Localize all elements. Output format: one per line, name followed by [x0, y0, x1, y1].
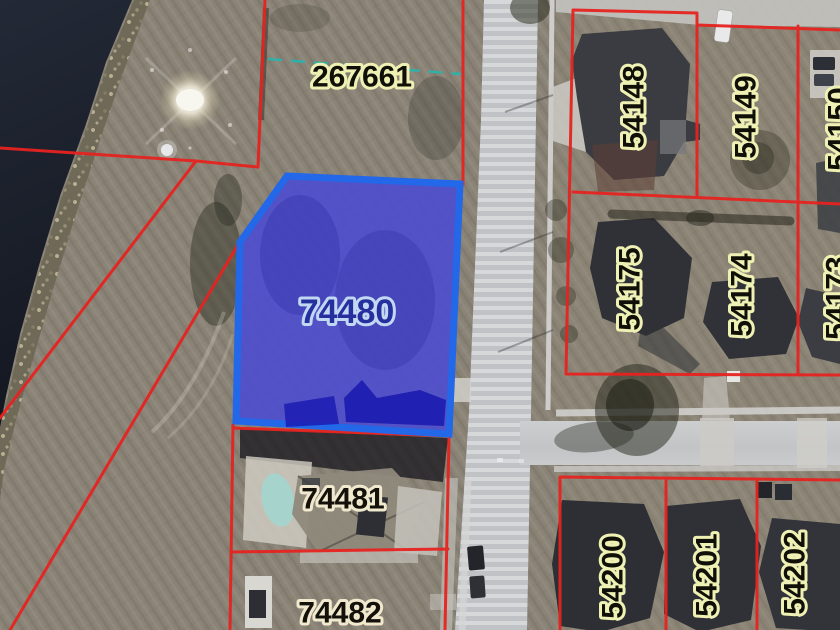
- hedgerow-bush: [686, 210, 714, 226]
- parcel-label-54202[interactable]: 54202: [779, 531, 812, 614]
- parcel-label-74480[interactable]: 74480: [300, 293, 395, 331]
- parcel-label-54175[interactable]: 54175: [614, 247, 647, 330]
- road-marking: [519, 459, 524, 463]
- car-road-2: [469, 575, 485, 598]
- boundary-west-horizontal: [0, 148, 258, 167]
- glare-core: [176, 89, 204, 111]
- sun-glare: [146, 48, 236, 160]
- parcel-label-54148[interactable]: 54148: [618, 65, 651, 148]
- map-canvas[interactable]: 267661 74480 74481 74482 54148 54149 541…: [0, 0, 840, 630]
- patio-54148: [660, 120, 686, 154]
- concrete-74481: [394, 486, 442, 556]
- car-dark2-54150: [814, 74, 834, 86]
- pole-shadows: [498, 95, 553, 352]
- glare-small: [161, 144, 173, 156]
- car-54202-2: [775, 484, 792, 500]
- driveway-apron-east: [797, 418, 827, 468]
- white-shed-54174: [727, 371, 740, 382]
- parcel-label-74481[interactable]: 74481: [301, 483, 384, 516]
- driveway-apron-54174: [700, 418, 734, 466]
- road-marking: [497, 458, 503, 462]
- tree: [560, 325, 578, 343]
- tree: [545, 199, 567, 221]
- shed-74482-dark: [249, 590, 266, 618]
- tire-track: [168, 334, 233, 438]
- sidewalk-cross-bottom: [554, 468, 840, 469]
- tree-shadow: [270, 4, 330, 32]
- parcel-label-54200[interactable]: 54200: [597, 535, 630, 618]
- boundary-diagonal-a: [0, 161, 196, 418]
- driveway-54174: [702, 376, 730, 420]
- boundary-diagonal-b: [10, 243, 239, 630]
- parcel-label-54149[interactable]: 54149: [730, 75, 763, 158]
- car-dark-54150: [813, 57, 835, 70]
- tree-intersection-core: [606, 379, 654, 431]
- parcel-label-54174[interactable]: 54174: [726, 253, 759, 337]
- tree-shadow: [408, 76, 464, 160]
- pad-bottom-left: [430, 594, 456, 610]
- parcel-label-54173[interactable]: 54173: [821, 256, 840, 339]
- brush-west-of-parcel: [214, 174, 242, 226]
- parcel-label-74482[interactable]: 74482: [298, 597, 381, 630]
- map-overlay: 267661 74480 74481 74482 54148 54149 541…: [0, 0, 840, 630]
- tree: [548, 237, 574, 263]
- parcel-label-267661[interactable]: 267661: [312, 61, 412, 94]
- car-road-1: [467, 545, 485, 570]
- sidewalk-west: [462, 480, 468, 630]
- parcel-label-54150[interactable]: 54150: [823, 87, 840, 170]
- tree-road-top: [510, 0, 550, 24]
- parcel-label-54201[interactable]: 54201: [691, 533, 724, 616]
